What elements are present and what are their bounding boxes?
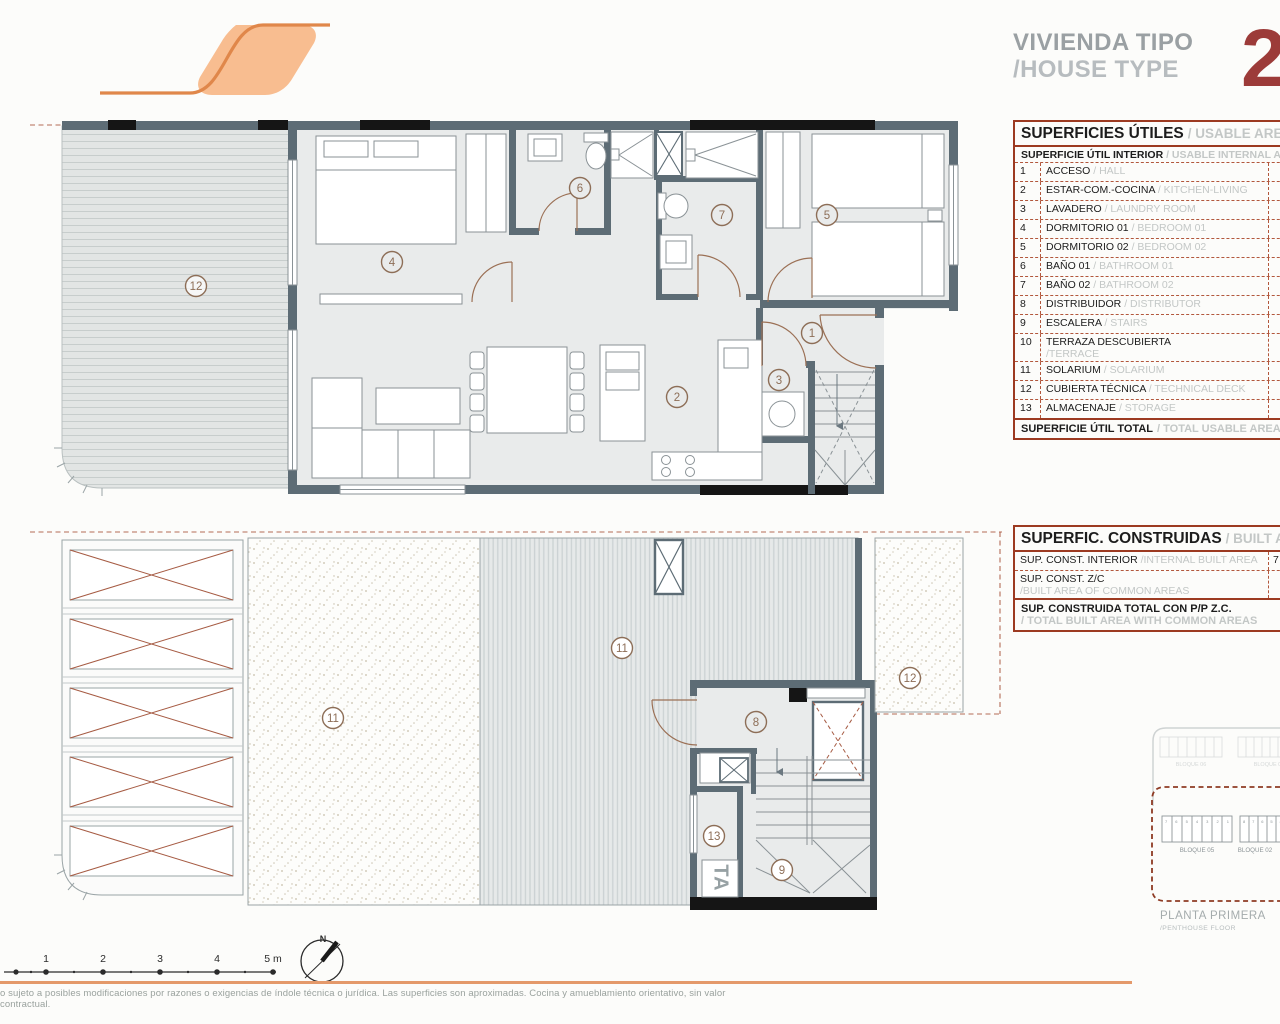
svg-text:TA: TA: [710, 864, 732, 891]
developer-logo-swoosh: [100, 25, 330, 95]
house-type-title-en: /HOUSE TYPE: [1013, 57, 1193, 84]
built-area-table: SUPERFIC. CONSTRUIDAS / BUILT AREA SUP. …: [1013, 525, 1280, 632]
built-table-header: SUPERFIC. CONSTRUIDAS / BUILT AREA: [1015, 527, 1280, 552]
svg-text:6: 6: [577, 183, 583, 195]
wardrobe-bedroom01: [466, 134, 506, 232]
usable-total-row: SUPERFICIE ÚTIL TOTAL / TOTAL USABLE ARE…: [1015, 418, 1280, 438]
svg-text:3: 3: [776, 375, 782, 387]
svg-text:11: 11: [616, 643, 628, 655]
svg-text:8: 8: [753, 717, 759, 729]
house-type-number: 2: [1241, 18, 1280, 100]
table-row: SUP. CONST. INTERIOR /INTERNAL BUILT ARE…: [1015, 552, 1280, 571]
north-compass-icon: N: [301, 934, 343, 982]
bed-double: [316, 136, 456, 244]
svg-text:9: 9: [779, 865, 785, 877]
wardrobe-bedroom02: [766, 132, 800, 228]
table-row: 4DORMITORIO 01 / BEDROOM 01: [1015, 220, 1280, 239]
table-row: 13ALMACENAJE / STORAGE: [1015, 400, 1280, 418]
svg-text:1: 1: [809, 328, 815, 340]
svg-text:5: 5: [824, 210, 830, 222]
table-row: 1ACCESO / HALL: [1015, 163, 1280, 182]
solarium-gravel: [248, 538, 480, 905]
lower-floor-plan: TA 11 11 8 9 13 12: [30, 532, 1002, 910]
footer-accent-rule: [0, 981, 1132, 984]
shower-bath01: [611, 132, 653, 178]
svg-text:/PENTHOUSE FLOOR: /PENTHOUSE FLOOR: [1160, 925, 1236, 932]
house-type-title-es: VIVIENDA TIPO: [1013, 30, 1193, 57]
table-row: 5DORMITORIO 02 / BEDROOM 02: [1015, 239, 1280, 258]
pergola-structures: [54, 540, 243, 900]
usable-area-table: SUPERFICIES ÚTILES / USABLE AREA SUPERFI…: [1013, 120, 1280, 440]
svg-text:4: 4: [389, 257, 396, 269]
svg-text:12: 12: [190, 281, 203, 293]
washing-machine: [760, 392, 804, 436]
terrace-technical-deck: [54, 120, 294, 496]
svg-text:BLOQUE 03: BLOQUE 03: [1254, 762, 1280, 768]
table-row: SUP. CONST. Z/C /BUILT AREA OF COMMON AR…: [1015, 571, 1280, 598]
svg-text:13: 13: [708, 831, 721, 843]
vent-shaft-roof: [655, 540, 683, 594]
svg-text:N: N: [320, 934, 327, 944]
ta-box: TA: [702, 860, 738, 897]
upper-floor-plan: 12 4 6 7 5 1 3 2: [30, 120, 958, 496]
sheet-title: VIVIENDA TIPO /HOUSE TYPE: [1013, 30, 1193, 84]
svg-text:2: 2: [100, 953, 106, 965]
table-row: 8DISTRIBUIDOR / DISTRIBUTOR: [1015, 296, 1280, 315]
shower-bath02: [686, 132, 758, 178]
vent-shaft-upper: [656, 132, 682, 176]
svg-text:2: 2: [674, 392, 680, 404]
floor-plan-sheet: { "header": { "title_es": "VIVIENDA TIPO…: [0, 0, 1280, 1024]
usable-table-header: SUPERFICIES ÚTILES / USABLE AREA: [1015, 122, 1280, 147]
svg-text:3: 3: [157, 953, 163, 965]
usable-table-subheader: SUPERFICIE ÚTIL INTERIOR / USABLE INTERN…: [1015, 147, 1280, 163]
table-row: 7BAÑO 02 / BATHROOM 02: [1015, 277, 1280, 296]
table-row: 12CUBIERTA TÉCNICA / TECHNICAL DECK: [1015, 381, 1280, 400]
svg-text:BLOQUE 05: BLOQUE 05: [1180, 847, 1215, 854]
built-total-row: 8 SUP. CONSTRUIDA TOTAL CON P/P Z.C. / T…: [1015, 598, 1280, 630]
table-row: 9ESCALERA / STAIRS: [1015, 315, 1280, 334]
table-row: 3LAVADERO / LAUNDRY ROOM: [1015, 201, 1280, 220]
svg-text:BLOQUE 06: BLOQUE 06: [1176, 762, 1207, 768]
svg-text:7: 7: [719, 210, 725, 222]
svg-text:4: 4: [214, 953, 220, 965]
legal-disclaimer: o sujeto a posibles modificaciones por r…: [0, 988, 762, 1010]
table-row: 11SOLARIUM / SOLARIUM: [1015, 362, 1280, 381]
table-row: 6BAÑO 01 / BATHROOM 01: [1015, 258, 1280, 277]
site-key-plan: BLOQUE 06 BLOQUE 03 7 6 5 4 3 2 1 8 7 6 …: [1152, 728, 1280, 932]
svg-text:BLOQUE 02: BLOQUE 02: [1238, 847, 1273, 854]
svg-text:12: 12: [904, 673, 917, 685]
svg-text:11: 11: [327, 713, 339, 725]
svg-text:1: 1: [43, 953, 49, 965]
scale-bar: 1 2 3 4 5 m: [4, 953, 282, 975]
technical-deck-lower: [875, 538, 963, 712]
svg-text:5 m: 5 m: [264, 953, 282, 965]
table-row: 10TERRAZA DESCUBIERTA /TERRACE: [1015, 334, 1280, 362]
table-row: 2ESTAR-COM.-COCINA / KITCHEN-LIVING: [1015, 182, 1280, 201]
svg-text:PLANTA PRIMERA: PLANTA PRIMERA: [1160, 910, 1266, 922]
